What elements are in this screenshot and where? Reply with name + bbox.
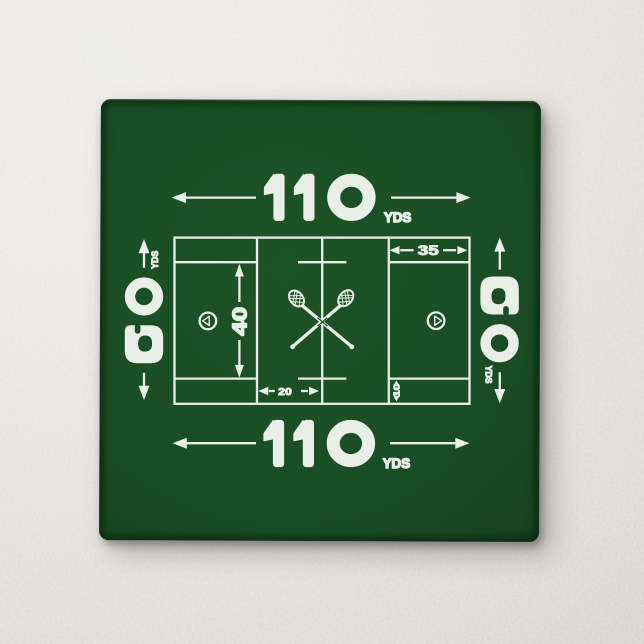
svg-text:YDS: YDS xyxy=(484,365,494,383)
svg-text:YDS: YDS xyxy=(384,210,412,225)
svg-text:40: 40 xyxy=(228,307,251,336)
svg-text:YDS: YDS xyxy=(150,251,160,269)
svg-text:20: 20 xyxy=(278,387,292,398)
svg-text:YDS: YDS xyxy=(383,456,411,471)
svg-text:10: 10 xyxy=(393,383,402,397)
svg-text:35: 35 xyxy=(418,242,439,258)
